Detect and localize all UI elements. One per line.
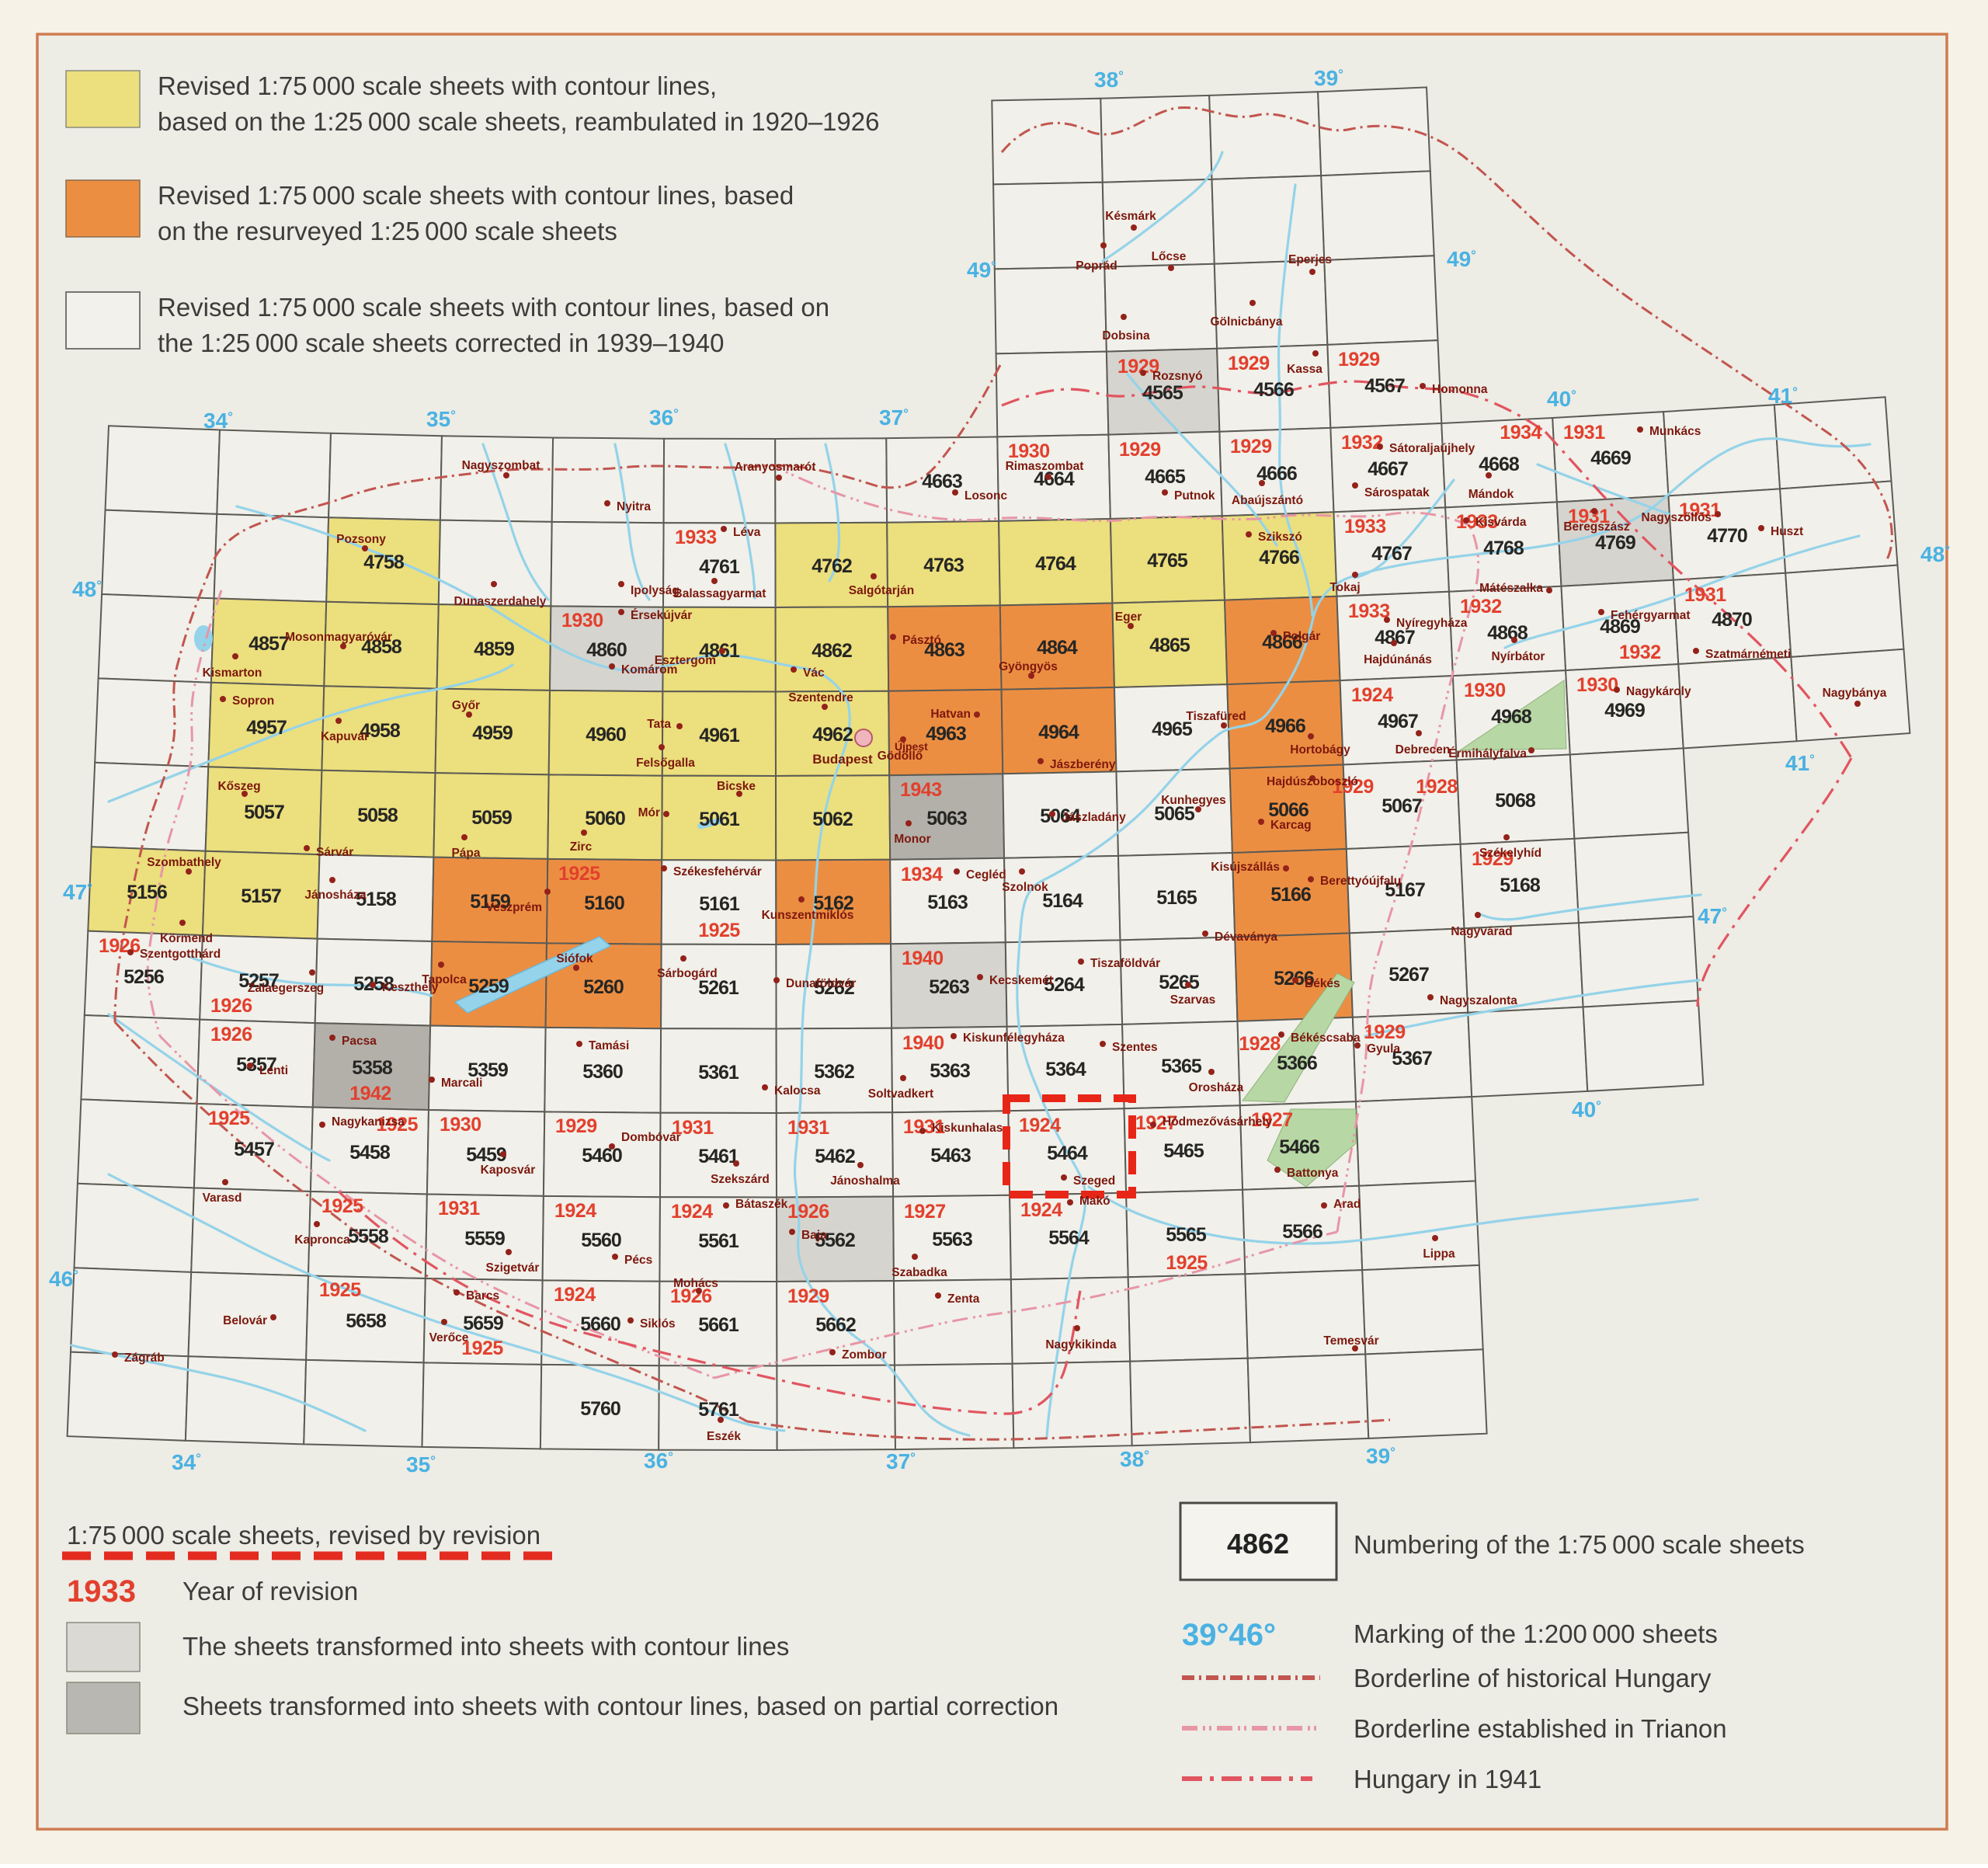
svg-text:1925: 1925 — [321, 1195, 363, 1217]
svg-text:4762: 4762 — [812, 555, 852, 577]
svg-text:5558: 5558 — [348, 1226, 389, 1247]
svg-text:1940: 1940 — [902, 1032, 944, 1054]
svg-text:Székesfehérvár: Székesfehérvár — [673, 865, 762, 878]
svg-text:1930: 1930 — [1464, 680, 1506, 701]
svg-text:4566: 4566 — [1253, 379, 1294, 401]
svg-text:Battonya: Battonya — [1287, 1167, 1339, 1180]
svg-text:Year of revision: Year of revision — [182, 1577, 358, 1605]
svg-text:Szekszárd: Szekszárd — [711, 1173, 770, 1186]
svg-text:Esztergom: Esztergom — [655, 654, 716, 667]
svg-text:Sárvár: Sárvár — [316, 846, 353, 859]
svg-text:5067: 5067 — [1382, 795, 1422, 817]
svg-text:Szentgotthárd: Szentgotthárd — [140, 948, 221, 961]
svg-text:Nyírbátor: Nyírbátor — [1492, 650, 1545, 663]
svg-text:5661: 5661 — [698, 1314, 739, 1336]
svg-text:5358: 5358 — [352, 1057, 393, 1079]
svg-text:1931: 1931 — [1684, 584, 1726, 606]
svg-text:Pozsony: Pozsony — [336, 533, 386, 546]
svg-text:4968: 4968 — [1491, 706, 1532, 728]
svg-text:Borderline of historical Hunga: Borderline of historical Hungary — [1354, 1664, 1712, 1692]
svg-text:Lenti: Lenti — [259, 1064, 288, 1077]
svg-text:1933: 1933 — [67, 1574, 136, 1609]
svg-text:Revised 1:75 000 scale sheets: Revised 1:75 000 scale sheets with conto… — [158, 71, 717, 100]
svg-text:5066: 5066 — [1268, 799, 1309, 821]
svg-text:The sheets transformed into sh: The sheets transformed into sheets with … — [182, 1632, 789, 1661]
svg-text:5165: 5165 — [1156, 887, 1197, 909]
svg-text:4960: 4960 — [586, 724, 626, 746]
svg-text:Nagykanizsa: Nagykanizsa — [332, 1115, 405, 1129]
svg-text:Debrecen: Debrecen — [1395, 743, 1451, 757]
svg-text:Baja: Baja — [801, 1229, 827, 1242]
svg-text:1932: 1932 — [1341, 432, 1383, 454]
svg-text:Szolnok: Szolnok — [1002, 881, 1048, 894]
svg-text:4761: 4761 — [699, 556, 740, 578]
svg-text:Kaposvár: Kaposvár — [481, 1164, 536, 1177]
svg-text:Budapest: Budapest — [812, 752, 873, 767]
svg-text:4665: 4665 — [1145, 466, 1186, 488]
svg-text:5164: 5164 — [1042, 890, 1083, 912]
svg-text:5466: 5466 — [1279, 1136, 1319, 1158]
svg-text:4963: 4963 — [926, 723, 966, 745]
svg-text:5161: 5161 — [699, 893, 740, 915]
svg-text:Balassagyarmat: Balassagyarmat — [674, 587, 766, 600]
svg-text:Polgár: Polgár — [1283, 630, 1320, 643]
svg-text:1928: 1928 — [1416, 776, 1458, 798]
svg-text:4565: 4565 — [1142, 382, 1183, 404]
svg-text:Szombathely: Szombathely — [147, 856, 221, 869]
svg-text:Nagykároly: Nagykároly — [1626, 685, 1691, 698]
svg-text:Lőcse: Lőcse — [1152, 250, 1187, 263]
svg-text:Temesvár: Temesvár — [1323, 1334, 1378, 1348]
svg-text:5362: 5362 — [814, 1061, 854, 1083]
svg-text:5565: 5565 — [1166, 1224, 1207, 1246]
svg-text:Nyitra: Nyitra — [617, 500, 651, 513]
svg-text:1932: 1932 — [1619, 642, 1661, 663]
svg-text:4567: 4567 — [1364, 375, 1405, 397]
svg-text:Kapronca: Kapronca — [294, 1233, 350, 1247]
svg-text:the 1:25 000 scale sheets corr: the 1:25 000 scale sheets corrected in 1… — [158, 329, 724, 357]
svg-text:Eperjes: Eperjes — [1288, 253, 1332, 266]
svg-text:Szatmárnémeti: Szatmárnémeti — [1705, 648, 1791, 661]
svg-text:Nagykikinda: Nagykikinda — [1045, 1338, 1117, 1351]
svg-text:1930: 1930 — [1008, 440, 1050, 462]
svg-text:Sátoraljaújhely: Sátoraljaújhely — [1389, 442, 1475, 455]
svg-text:5463: 5463 — [930, 1145, 971, 1167]
svg-text:5163: 5163 — [927, 892, 968, 913]
svg-text:Marking of the 1:200 000 sheet: Marking of the 1:200 000 sheets — [1354, 1619, 1718, 1648]
svg-text:Dobsina: Dobsina — [1102, 329, 1150, 343]
svg-text:1925: 1925 — [698, 920, 740, 941]
svg-text:Kisvárda: Kisvárda — [1475, 516, 1527, 529]
svg-text:Békés: Békés — [1305, 977, 1340, 990]
svg-text:Mándok: Mándok — [1468, 488, 1514, 501]
svg-text:5263: 5263 — [929, 976, 969, 998]
svg-text:5057: 5057 — [244, 802, 284, 823]
svg-text:5366: 5366 — [1277, 1052, 1317, 1074]
svg-text:5267: 5267 — [1388, 964, 1429, 986]
svg-text:Gyula: Gyula — [1367, 1042, 1400, 1056]
svg-text:Kapuvár: Kapuvár — [321, 730, 369, 743]
svg-text:5256: 5256 — [123, 966, 164, 988]
svg-text:Hortobágy: Hortobágy — [1290, 743, 1350, 757]
svg-text:4767: 4767 — [1371, 543, 1412, 565]
svg-text:Kiskunhalas: Kiskunhalas — [932, 1122, 1003, 1135]
svg-text:Kőszeg: Kőszeg — [217, 780, 260, 793]
svg-text:1925: 1925 — [208, 1108, 250, 1129]
svg-text:4959: 4959 — [472, 722, 513, 744]
svg-text:5157: 5157 — [241, 885, 281, 907]
svg-text:Érsekújvár: Érsekújvár — [631, 609, 692, 622]
svg-text:Borderline established in Tria: Borderline established in Trianon — [1354, 1714, 1727, 1743]
svg-text:Poprád: Poprád — [1076, 259, 1117, 273]
svg-text:5461: 5461 — [698, 1146, 739, 1167]
svg-text:4967: 4967 — [1378, 711, 1418, 732]
svg-text:Pacsa: Pacsa — [342, 1035, 377, 1048]
svg-text:Salgótarján: Salgótarján — [849, 584, 914, 597]
svg-text:4763: 4763 — [923, 555, 964, 576]
svg-text:1924: 1924 — [554, 1284, 596, 1306]
svg-text:1930: 1930 — [440, 1114, 481, 1136]
svg-text:5261: 5261 — [698, 977, 739, 999]
svg-text:4864: 4864 — [1037, 637, 1078, 659]
svg-text:Lippa: Lippa — [1423, 1247, 1455, 1261]
svg-text:4962: 4962 — [812, 724, 853, 746]
svg-text:Bicske: Bicske — [717, 780, 756, 793]
svg-text:Érmihályfalva: Érmihályfalva — [1448, 747, 1527, 760]
svg-text:1926: 1926 — [99, 935, 141, 957]
svg-text:5059: 5059 — [471, 807, 512, 829]
svg-text:Belovár: Belovár — [223, 1314, 267, 1327]
svg-text:1925: 1925 — [1166, 1252, 1208, 1274]
svg-text:Kunszentmiklós: Kunszentmiklós — [762, 909, 854, 922]
svg-text:Tamási: Tamási — [589, 1039, 629, 1052]
svg-text:Nagybánya: Nagybánya — [1823, 687, 1887, 700]
svg-text:Mór: Mór — [638, 806, 660, 819]
svg-text:5560: 5560 — [581, 1230, 621, 1251]
svg-text:4768: 4768 — [1483, 537, 1524, 559]
svg-text:Nagyszalonta: Nagyszalonta — [1440, 994, 1517, 1007]
svg-text:4758: 4758 — [363, 551, 405, 573]
svg-text:Nagyszombat: Nagyszombat — [462, 459, 540, 472]
svg-text:4859: 4859 — [474, 638, 514, 660]
svg-text:Rimaszombat: Rimaszombat — [1006, 460, 1084, 473]
svg-text:1931: 1931 — [787, 1117, 829, 1139]
svg-text:Revised 1:75 000 scale sheets: Revised 1:75 000 scale sheets with conto… — [158, 293, 829, 322]
svg-text:Jászladány: Jászladány — [1062, 811, 1126, 824]
svg-text:4961: 4961 — [699, 725, 740, 746]
svg-text:Kalocsa: Kalocsa — [774, 1084, 821, 1097]
svg-text:Barcs: Barcs — [466, 1289, 499, 1303]
svg-text:5160: 5160 — [584, 892, 624, 914]
svg-text:4964: 4964 — [1038, 722, 1079, 743]
svg-text:4957: 4957 — [246, 717, 287, 739]
svg-text:5458: 5458 — [349, 1142, 391, 1164]
svg-text:Szikszó: Szikszó — [1258, 530, 1302, 544]
svg-text:Tapolca: Tapolca — [422, 973, 467, 986]
svg-text:1928: 1928 — [1239, 1033, 1281, 1055]
svg-text:Kassa: Kassa — [1287, 363, 1322, 376]
svg-text:Varasd: Varasd — [203, 1191, 242, 1205]
svg-text:Cegléd: Cegléd — [966, 868, 1006, 882]
svg-text:5659: 5659 — [463, 1313, 503, 1334]
svg-text:1925: 1925 — [319, 1279, 361, 1301]
svg-text:Kiskunfélegyháza: Kiskunfélegyháza — [963, 1031, 1065, 1045]
svg-text:Marcali: Marcali — [441, 1077, 482, 1090]
svg-text:5563: 5563 — [932, 1229, 972, 1251]
svg-text:Hatvan: Hatvan — [930, 708, 971, 721]
svg-text:Putnok: Putnok — [1174, 489, 1215, 503]
svg-text:Zenta: Zenta — [947, 1292, 980, 1306]
svg-text:Szabadka: Szabadka — [891, 1266, 947, 1279]
svg-text:5060: 5060 — [585, 808, 625, 830]
svg-text:Zalaegerszeg: Zalaegerszeg — [248, 982, 324, 995]
svg-text:on the resurveyed 1:25 000 sca: on the resurveyed 1:25 000 scale sheets — [158, 217, 617, 245]
svg-text:4764: 4764 — [1035, 553, 1076, 575]
svg-text:1931: 1931 — [1563, 422, 1605, 444]
svg-text:Kecskemét: Kecskemét — [989, 974, 1053, 987]
svg-text:1943: 1943 — [900, 779, 942, 801]
svg-text:1924: 1924 — [671, 1201, 713, 1223]
svg-text:4862: 4862 — [1227, 1528, 1289, 1560]
svg-text:Siófok: Siófok — [556, 952, 593, 965]
svg-text:Arad: Arad — [1333, 1198, 1361, 1211]
svg-text:Eszék: Eszék — [707, 1430, 741, 1443]
svg-text:5265: 5265 — [1159, 972, 1200, 993]
svg-text:5760: 5760 — [580, 1398, 620, 1420]
svg-text:Eger: Eger — [1115, 610, 1142, 624]
svg-text:5660: 5660 — [580, 1313, 620, 1335]
svg-text:Székelyhíd: Székelyhíd — [1479, 847, 1541, 860]
svg-text:Kismarton: Kismarton — [203, 666, 262, 680]
svg-text:Dunaszerdahely: Dunaszerdahely — [454, 595, 547, 608]
svg-text:Soltvadkert: Soltvadkert — [868, 1087, 933, 1101]
svg-text:1924: 1924 — [554, 1200, 596, 1222]
svg-text:Sárbogárd: Sárbogárd — [657, 967, 718, 980]
svg-text:4668: 4668 — [1479, 454, 1520, 475]
svg-text:Vác: Vác — [803, 666, 825, 680]
svg-text:5062: 5062 — [812, 809, 853, 830]
svg-text:Fehérgyarmat: Fehérgyarmat — [1611, 609, 1691, 622]
svg-text:Hungary in 1941: Hungary in 1941 — [1354, 1765, 1541, 1793]
svg-text:Ipolyság: Ipolyság — [631, 584, 679, 597]
svg-text:Gölnicbánya: Gölnicbánya — [1210, 315, 1282, 329]
svg-text:5658: 5658 — [346, 1310, 387, 1332]
svg-text:1940: 1940 — [902, 948, 944, 969]
svg-text:Nyíregyháza: Nyíregyháza — [1396, 617, 1468, 630]
svg-text:5259: 5259 — [468, 976, 509, 997]
svg-text:4860: 4860 — [586, 639, 627, 661]
svg-text:1929: 1929 — [1338, 349, 1380, 370]
svg-text:Dunaföldvár: Dunaföldvár — [786, 977, 856, 990]
svg-text:Sheets transformed into sheets: Sheets transformed into sheets with cont… — [182, 1692, 1058, 1720]
svg-text:Mohács: Mohács — [673, 1277, 718, 1290]
svg-text:Beregszász: Beregszász — [1563, 520, 1630, 534]
svg-text:Mátészalka: Mátészalka — [1479, 582, 1543, 595]
svg-text:Szentendre: Szentendre — [788, 691, 853, 704]
svg-text:4769: 4769 — [1595, 532, 1635, 554]
svg-text:1942: 1942 — [349, 1083, 391, 1104]
svg-text:5063: 5063 — [926, 808, 967, 830]
svg-text:Rozsnyó: Rozsnyó — [1152, 370, 1203, 383]
svg-text:Monor: Monor — [894, 833, 930, 846]
svg-text:Felsőgalla: Felsőgalla — [636, 757, 695, 770]
svg-text:1929: 1929 — [555, 1115, 597, 1137]
svg-text:4868: 4868 — [1487, 622, 1528, 644]
svg-text:4669: 4669 — [1590, 447, 1631, 469]
svg-text:Huszt: Huszt — [1771, 525, 1803, 538]
svg-text:Karcag: Karcag — [1270, 819, 1312, 832]
svg-text:1924: 1924 — [1019, 1115, 1061, 1136]
svg-text:Kisújszállás: Kisújszállás — [1211, 861, 1280, 874]
svg-text:1934: 1934 — [901, 864, 943, 885]
svg-text:5464: 5464 — [1047, 1143, 1088, 1164]
svg-text:Újpest: Újpest — [895, 739, 928, 753]
svg-text:Pécs: Pécs — [624, 1254, 652, 1267]
svg-text:1934: 1934 — [1500, 422, 1541, 444]
svg-text:Szigetvár: Szigetvár — [486, 1261, 540, 1275]
svg-text:5260: 5260 — [583, 976, 624, 998]
svg-text:5465: 5465 — [1163, 1140, 1204, 1162]
svg-text:Tokaj: Tokaj — [1329, 581, 1360, 594]
svg-text:4667: 4667 — [1368, 458, 1408, 480]
svg-text:1930: 1930 — [561, 610, 603, 631]
svg-text:Mosonmagyaróvár: Mosonmagyaróvár — [285, 631, 392, 644]
svg-text:Dévaványa: Dévaványa — [1215, 931, 1277, 944]
svg-text:Kunhegyes: Kunhegyes — [1161, 794, 1226, 807]
svg-text:5168: 5168 — [1500, 875, 1541, 896]
svg-text:Dombóvár: Dombóvár — [621, 1131, 681, 1144]
svg-text:4765: 4765 — [1147, 550, 1188, 572]
svg-text:5662: 5662 — [815, 1314, 856, 1336]
svg-text:1929: 1929 — [1119, 439, 1161, 461]
svg-text:Siklós: Siklós — [640, 1317, 676, 1331]
svg-text:Zombor: Zombor — [842, 1348, 887, 1362]
svg-text:Szeged: Szeged — [1073, 1174, 1115, 1188]
svg-text:Léva: Léva — [733, 526, 761, 539]
svg-text:5559: 5559 — [464, 1228, 505, 1250]
svg-text:39°46°: 39°46° — [1182, 1618, 1276, 1652]
svg-text:Hódmezővásárhely: Hódmezővásárhely — [1163, 1115, 1273, 1129]
svg-text:1926: 1926 — [210, 1024, 252, 1045]
svg-text:1929: 1929 — [1230, 436, 1272, 457]
svg-text:1925: 1925 — [558, 863, 600, 885]
svg-text:1932: 1932 — [1460, 596, 1502, 617]
svg-text:1926: 1926 — [210, 995, 252, 1017]
svg-text:1931: 1931 — [438, 1198, 480, 1219]
svg-text:1926: 1926 — [787, 1201, 829, 1223]
svg-text:Szentes: Szentes — [1112, 1041, 1158, 1054]
svg-text:Győr: Győr — [452, 699, 480, 712]
svg-text:5457: 5457 — [234, 1139, 274, 1160]
svg-text:4870: 4870 — [1712, 609, 1752, 631]
svg-text:Hajdúnánás: Hajdúnánás — [1364, 653, 1432, 666]
svg-text:4663: 4663 — [922, 471, 962, 492]
svg-text:Tiszaföldvár: Tiszaföldvár — [1090, 957, 1160, 970]
svg-text:5364: 5364 — [1045, 1059, 1086, 1080]
svg-text:1929: 1929 — [787, 1285, 829, 1307]
svg-text:5761: 5761 — [698, 1399, 739, 1421]
svg-text:4969: 4969 — [1604, 700, 1645, 722]
svg-text:Bátaszék: Bátaszék — [735, 1198, 788, 1211]
svg-text:Berettyóújfalu: Berettyóújfalu — [1320, 875, 1401, 888]
svg-text:4966: 4966 — [1265, 715, 1305, 737]
svg-text:Revised 1:75 000 scale sheets: Revised 1:75 000 scale sheets with conto… — [158, 181, 794, 210]
svg-text:5564: 5564 — [1048, 1227, 1090, 1249]
svg-text:Sopron: Sopron — [232, 694, 274, 708]
svg-text:Jánoshalma: Jánoshalma — [830, 1174, 900, 1188]
svg-text:Homonna: Homonna — [1432, 383, 1488, 396]
svg-text:1933: 1933 — [1344, 516, 1386, 537]
svg-text:5360: 5360 — [582, 1061, 623, 1083]
svg-text:Jánosháza: Jánosháza — [304, 889, 367, 902]
svg-text:Gyöngyös: Gyöngyös — [999, 660, 1058, 673]
svg-text:Losonc: Losonc — [964, 489, 1007, 503]
svg-text:Nagyvárad: Nagyvárad — [1451, 925, 1512, 938]
svg-text:1924: 1924 — [1351, 684, 1393, 706]
svg-text:5058: 5058 — [357, 805, 398, 826]
svg-text:4865: 4865 — [1149, 635, 1190, 656]
svg-text:1933: 1933 — [1348, 600, 1390, 622]
svg-text:1929: 1929 — [1364, 1021, 1406, 1043]
svg-text:5363: 5363 — [930, 1060, 970, 1082]
svg-text:1927: 1927 — [904, 1201, 946, 1223]
svg-text:Késmárk: Késmárk — [1105, 210, 1156, 223]
svg-text:Körmend: Körmend — [160, 932, 213, 945]
svg-text:5460: 5460 — [582, 1145, 622, 1167]
svg-text:4862: 4862 — [812, 640, 852, 662]
svg-text:5462: 5462 — [815, 1146, 855, 1167]
svg-text:5061: 5061 — [699, 809, 740, 830]
svg-text:Abaújszántó: Abaújszántó — [1232, 494, 1303, 507]
svg-text:Verőce: Verőce — [429, 1331, 469, 1344]
svg-text:Jászberény: Jászberény — [1050, 758, 1116, 771]
svg-text:Numbering of the 1:75 000 scal: Numbering of the 1:75 000 scale sheets — [1354, 1530, 1805, 1559]
svg-text:Hajdúszoboszló: Hajdúszoboszló — [1267, 775, 1358, 788]
svg-text:5068: 5068 — [1495, 790, 1536, 812]
svg-text:Veszprém: Veszprém — [486, 901, 542, 914]
svg-text:Tiszafüred: Tiszafüred — [1186, 710, 1246, 723]
svg-text:5365: 5365 — [1161, 1056, 1202, 1077]
svg-text:Makó: Makó — [1079, 1195, 1110, 1208]
svg-text:Szarvas: Szarvas — [1170, 993, 1216, 1007]
svg-text:4857: 4857 — [248, 633, 289, 655]
svg-text:5166: 5166 — [1270, 884, 1311, 906]
svg-text:Aranyosmarót: Aranyosmarót — [734, 461, 815, 474]
svg-text:5156: 5156 — [127, 882, 167, 903]
svg-text:Pásztó: Pásztó — [902, 634, 941, 647]
svg-text:1933: 1933 — [675, 527, 717, 548]
svg-text:1924: 1924 — [1020, 1199, 1062, 1221]
svg-text:Zirc: Zirc — [570, 840, 593, 854]
svg-text:Munkács: Munkács — [1649, 425, 1701, 438]
svg-text:Pápa: Pápa — [451, 847, 480, 860]
svg-text:Tata: Tata — [647, 718, 671, 731]
svg-text:1929: 1929 — [1228, 353, 1270, 374]
svg-text:1:75 000 scale sheets, revised: 1:75 000 scale sheets, revised by revisi… — [67, 1521, 540, 1550]
svg-text:Békéscsaba: Békéscsaba — [1291, 1031, 1361, 1045]
svg-text:based on the 1:25 000 scale sh: based on the 1:25 000 scale sheets, ream… — [158, 107, 879, 136]
svg-text:Sárospatak: Sárospatak — [1364, 486, 1430, 499]
svg-text:Nagyszőllős: Nagyszőllős — [1642, 511, 1712, 524]
svg-text:Zágráb: Zágráb — [124, 1351, 165, 1365]
svg-text:4766: 4766 — [1259, 547, 1299, 569]
svg-text:1930: 1930 — [1576, 674, 1618, 696]
svg-text:4770: 4770 — [1707, 525, 1747, 547]
svg-text:5566: 5566 — [1282, 1221, 1322, 1243]
svg-text:5561: 5561 — [698, 1230, 739, 1252]
svg-text:Orosháza: Orosháza — [1189, 1081, 1244, 1094]
svg-text:5361: 5361 — [698, 1062, 739, 1084]
